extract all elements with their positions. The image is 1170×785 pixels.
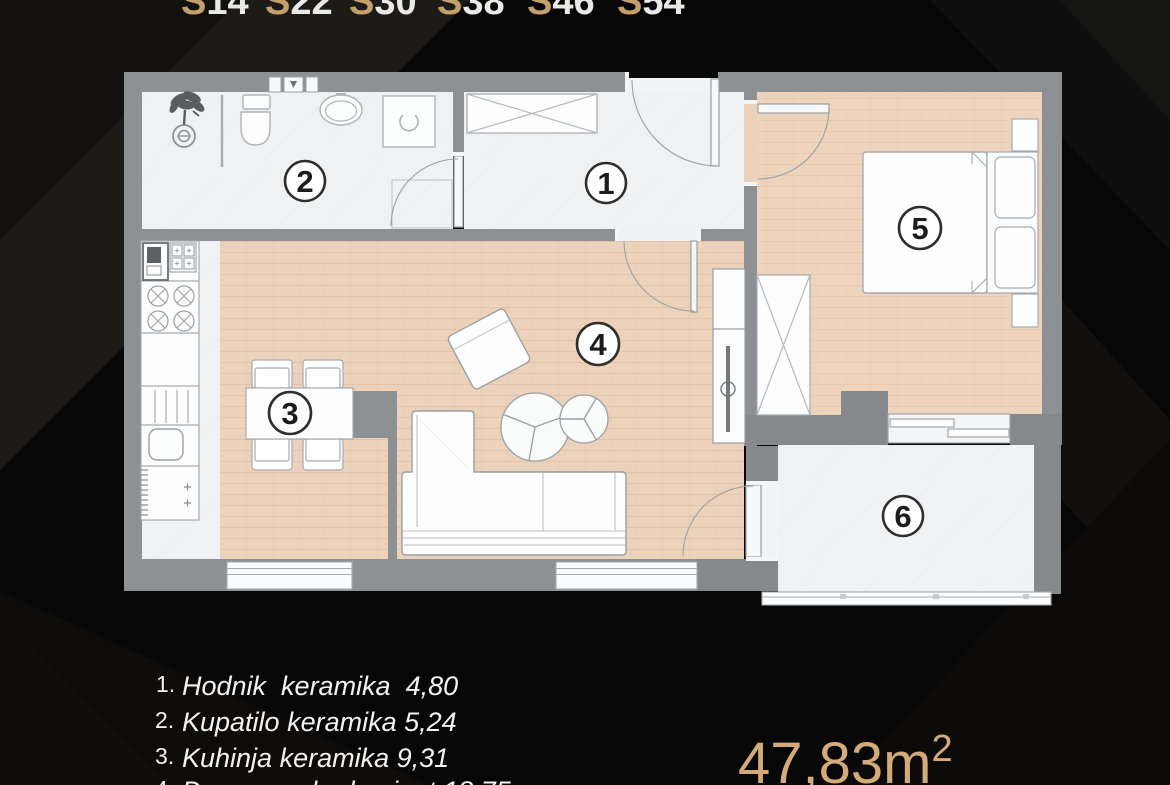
svg-text:S54: S54 [617,0,685,23]
svg-text:Dnevna soba laminat 18,75: Dnevna soba laminat 18,75 [182,776,512,785]
svg-text:3: 3 [281,396,298,431]
svg-text:Kuhinja keramika 9,31: Kuhinja keramika 9,31 [182,743,449,773]
svg-text:4.: 4. [155,776,174,785]
svg-text:S38: S38 [437,0,505,23]
svg-text:S22: S22 [265,0,333,23]
svg-text:S14: S14 [181,0,249,23]
svg-text:S30: S30 [349,0,417,23]
svg-text:47,83m2: 47,83m2 [738,728,953,785]
svg-text:Kupatilo keramika 5,24: Kupatilo keramika 5,24 [182,707,457,737]
svg-text:2: 2 [296,164,313,199]
svg-text:4: 4 [589,327,607,362]
svg-text:2.: 2. [155,707,174,733]
svg-text:S46: S46 [527,0,595,23]
svg-text:1: 1 [597,166,614,201]
svg-text:3.: 3. [155,743,174,769]
svg-text:1.: 1. [156,671,175,697]
svg-text:6: 6 [894,499,911,534]
svg-text:5: 5 [911,211,928,246]
svg-text:Hodnik keramika 4,80: Hodnik keramika 4,80 [182,671,458,701]
